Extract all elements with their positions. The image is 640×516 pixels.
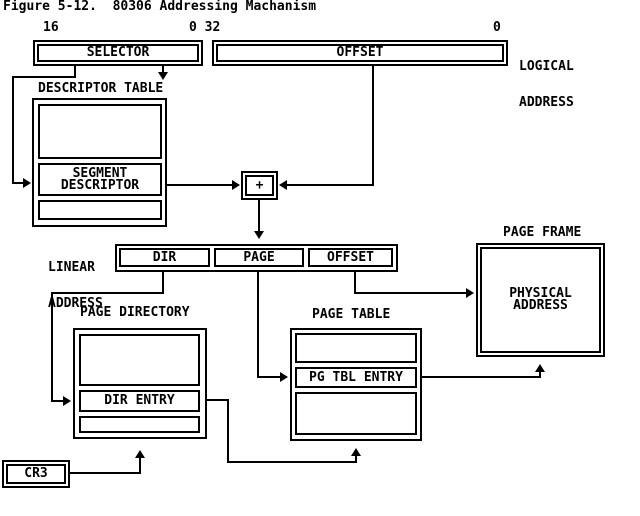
arrowhead-up-icon [135,450,145,458]
logical-address-label-line1: LOGICAL [519,61,574,73]
arrowhead-up-icon [351,448,361,456]
wire-page-to-pg-tbl-entry [258,272,280,377]
figure-title: Figure 5-12. 80306 Addressing Machanism [3,1,316,13]
cr3-label: CR3 [6,464,66,484]
page-table-title: PAGE TABLE [312,309,390,321]
descriptor-table-empty-slot-bottom [38,200,162,220]
page-table-empty-slot-bottom [295,392,417,435]
arrowhead-down-icon [158,72,168,80]
plus-symbol: + [245,175,274,196]
arrowhead-right-icon [466,288,474,298]
page-directory-empty-slot-bottom [79,416,200,433]
arrowhead-right-icon [232,180,240,190]
arrowhead-right-icon [23,178,31,188]
adder-box: + [241,171,278,200]
selector-label: SELECTOR [37,44,199,62]
arrowhead-right-icon [63,396,71,406]
bit-marker-0: 0 [493,22,501,34]
page-frame-box: PHYSICAL ADDRESS [476,243,605,357]
page-frame-title: PAGE FRAME [503,227,581,239]
pg-tbl-entry-box: PG TBL ENTRY [295,367,417,388]
arrowhead-up-icon [535,364,545,372]
segment-descriptor-box: SEGMENT DESCRIPTOR [38,163,162,196]
wire-pg-tbl-entry-to-page-frame [420,372,540,377]
page-directory-empty-slot-top [79,334,200,386]
offset-label: OFFSET [216,44,504,62]
offset-box: OFFSET [212,40,508,66]
figure-canvas: Figure 5-12. 80306 Addressing Machanism … [0,0,640,516]
arrowhead-left-icon [279,180,287,190]
wire-offset-to-adder [287,66,373,185]
logical-address-label: LOGICAL ADDRESS [519,37,574,133]
wire-cr3-to-page-directory [68,458,140,473]
page-directory-title: PAGE DIRECTORY [80,307,190,319]
descriptor-table-title: DESCRIPTOR TABLE [38,83,163,95]
page-field: PAGE [214,248,304,267]
bit-marker-0-32: 0 32 [189,22,220,34]
physical-address-label: PHYSICAL ADDRESS [480,247,601,353]
logical-address-label-line2: ADDRESS [519,97,574,109]
arrowhead-down-icon [254,231,264,239]
selector-box: SELECTOR [33,40,203,66]
descriptor-table-empty-slot-top [38,104,162,159]
page-table-empty-slot-top [295,333,417,363]
bit-marker-16: 16 [43,22,59,34]
wire-offset-to-page-frame [355,272,466,293]
dir-entry-box: DIR ENTRY [79,390,200,412]
arrowhead-right-icon [280,372,288,382]
linear-address-label-line1: LINEAR [48,262,103,274]
cr3-register-box: CR3 [2,460,70,488]
offset-field: OFFSET [308,248,393,267]
dir-field: DIR [119,248,210,267]
segment-descriptor-line2: DESCRIPTOR [61,180,139,192]
physical-address-line2: ADDRESS [509,300,572,312]
